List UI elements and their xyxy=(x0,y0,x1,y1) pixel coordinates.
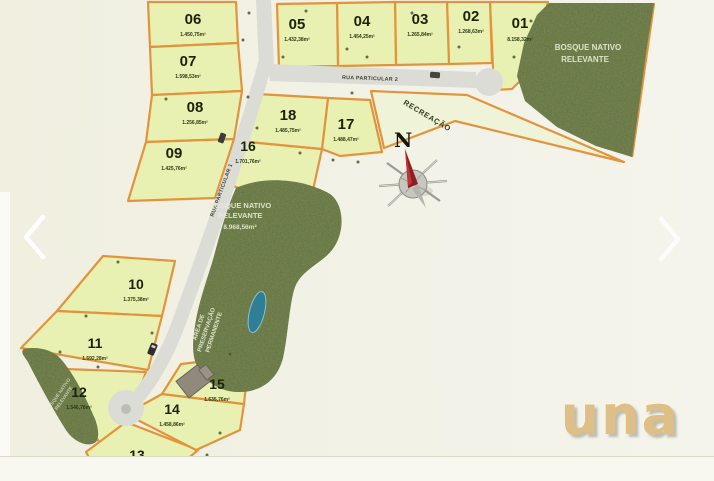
svg-text:1.375,38m²: 1.375,38m² xyxy=(123,297,149,303)
svg-text:06: 06 xyxy=(185,11,202,28)
svg-text:8.968,56m²: 8.968,56m² xyxy=(223,224,257,231)
svg-text:1.458,86m²: 1.458,86m² xyxy=(159,422,185,428)
compass-north-label: N xyxy=(394,128,412,152)
svg-text:1.265,84m²: 1.265,84m² xyxy=(407,32,433,38)
svg-text:04: 04 xyxy=(354,13,371,30)
svg-text:18: 18 xyxy=(280,107,297,124)
svg-text:8.158,32m²: 8.158,32m² xyxy=(507,37,533,43)
svg-text:1.425,76m²: 1.425,76m² xyxy=(161,166,187,172)
svg-text:1.635,76m²: 1.635,76m² xyxy=(204,397,230,403)
carousel-prev-button[interactable] xyxy=(18,210,52,264)
svg-text:1.450,75m²: 1.450,75m² xyxy=(180,32,206,38)
svg-text:RELEVANTE: RELEVANTE xyxy=(561,55,610,64)
svg-text:12: 12 xyxy=(71,384,87,400)
svg-text:1.485,75m²: 1.485,75m² xyxy=(275,128,301,134)
svg-text:1.592,28m²: 1.592,28m² xyxy=(82,356,108,362)
svg-text:1.488,47m²: 1.488,47m² xyxy=(333,137,359,143)
chevron-right-icon xyxy=(652,212,686,266)
svg-text:1.454,25m²: 1.454,25m² xyxy=(349,34,375,40)
svg-text:02: 02 xyxy=(463,8,480,25)
svg-text:1.432,38m²: 1.432,38m² xyxy=(284,37,310,43)
svg-text:09: 09 xyxy=(166,145,183,162)
svg-text:1.546,76m²: 1.546,76m² xyxy=(66,405,92,411)
car-icon-3 xyxy=(430,72,440,79)
svg-text:1.256,85m²: 1.256,85m² xyxy=(182,120,208,126)
cul-de-sac-island xyxy=(121,404,131,414)
road-end-bulb xyxy=(475,68,503,96)
svg-text:RELEVANTE: RELEVANTE xyxy=(218,211,263,220)
site-plan-image: RUA PARTICULAR 2 RUA PARTICULAR 1 RECREA… xyxy=(0,0,714,481)
chevron-left-icon xyxy=(18,210,52,264)
svg-text:1.268,63m²: 1.268,63m² xyxy=(458,29,484,35)
svg-text:11: 11 xyxy=(88,335,103,351)
svg-text:1.598,53m²: 1.598,53m² xyxy=(175,74,201,80)
svg-text:BOSQUE NATIVO: BOSQUE NATIVO xyxy=(555,43,622,52)
svg-text:1.701,76m²: 1.701,76m² xyxy=(235,159,261,165)
road-top xyxy=(256,0,274,66)
svg-text:08: 08 xyxy=(187,99,204,116)
carousel-edge-sliver xyxy=(0,192,10,457)
svg-text:14: 14 xyxy=(164,401,180,417)
brand-logo: una xyxy=(561,389,680,443)
lot-05-shape xyxy=(277,3,338,67)
svg-text:01: 01 xyxy=(512,15,529,32)
svg-text:16: 16 xyxy=(240,138,256,154)
svg-text:07: 07 xyxy=(180,53,197,70)
svg-text:BOSQUE NATIVO: BOSQUE NATIVO xyxy=(209,201,272,210)
bottom-strip xyxy=(0,456,714,481)
svg-text:15: 15 xyxy=(209,376,225,392)
carousel-next-button[interactable] xyxy=(652,212,686,266)
svg-text:17: 17 xyxy=(338,116,355,133)
svg-text:03: 03 xyxy=(412,11,429,28)
svg-text:05: 05 xyxy=(289,16,306,33)
svg-text:10: 10 xyxy=(128,276,144,292)
